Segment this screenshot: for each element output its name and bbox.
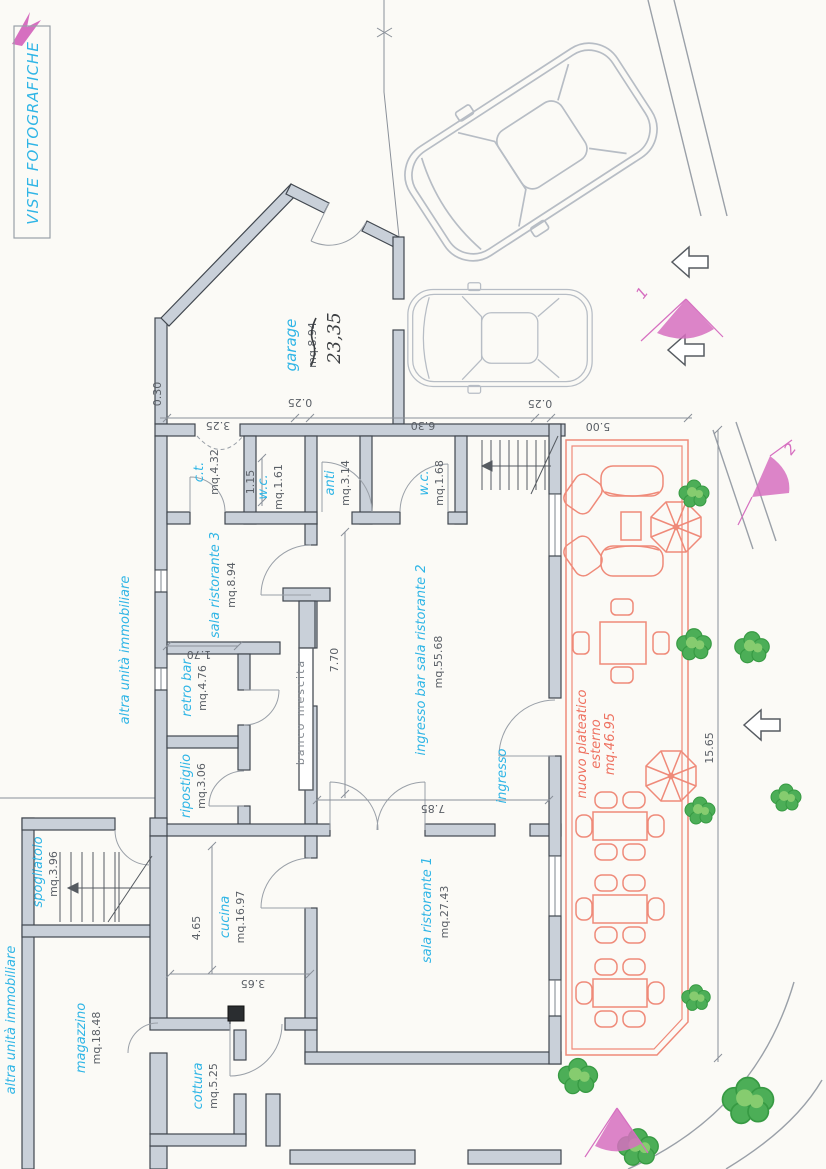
photo-views-title: VISTE FOTOGRAFICHE — [24, 41, 42, 225]
room-anti-area: mq.3.14 — [339, 460, 352, 506]
photo-views-title-box: VISTE FOTOGRAFICHE — [14, 26, 50, 238]
photo-view-marker-1: 1 — [632, 284, 723, 341]
dim-500: 5.00 — [586, 420, 611, 433]
photo-view-marker-2: 2 — [738, 440, 800, 525]
lounge-set — [560, 466, 663, 579]
room-ct: c.t. — [192, 462, 207, 483]
direction-arrow — [668, 335, 704, 365]
room-hall: ingresso bar sala ristorante 2 — [414, 564, 429, 755]
room-hall-area: mq.55.68 — [432, 636, 445, 689]
dim-030: 0.30 — [151, 382, 164, 407]
window — [549, 494, 561, 556]
window — [155, 570, 167, 592]
room-spogliatoio: spogliatoio — [31, 836, 46, 907]
room-ripostiglio-area: mq.3.06 — [195, 763, 208, 809]
window — [155, 668, 167, 690]
marker-number: 1 — [632, 284, 652, 303]
dining-table-set — [576, 959, 664, 1027]
room-magazzino-area: mq.18.48 — [90, 1012, 103, 1065]
room-ripostiglio: ripostiglio — [179, 754, 194, 818]
plateatico-line2: esterno — [589, 719, 604, 768]
room-sala3: sala ristorante 3 — [208, 532, 223, 638]
staircase-spogliatoio — [60, 852, 152, 922]
dim-1565: 15.65 — [703, 732, 716, 764]
room-anti: anti — [323, 470, 338, 495]
label-plateatico: nuovo plateatico esterno mq.46.95 — [575, 690, 618, 799]
room-wc1-area: mq.1.61 — [272, 464, 285, 510]
label-altra-unita-lower: altra unità immobiliare — [4, 946, 19, 1095]
label-ingresso: ingresso — [495, 748, 510, 803]
room-spogliatoio-area: mq.3.96 — [47, 851, 60, 897]
car-parked — [408, 283, 592, 394]
room-cottura: cottura — [191, 1063, 206, 1110]
dim-465: 4.65 — [190, 916, 203, 941]
room-magazzino: magazzino — [74, 1003, 89, 1073]
floor-plan-page: 1 2 VISTE FOTOGRAFICHE garage mq.8.94 23… — [0, 0, 826, 1169]
room-wc1: w.c. — [256, 474, 271, 499]
room-cucina-area: mq.16.97 — [234, 891, 247, 944]
dim-325: 3.25 — [206, 419, 231, 432]
room-cottura-area: mq.5.25 — [207, 1063, 220, 1109]
car-top-right — [387, 23, 675, 282]
bushes — [559, 480, 802, 1165]
room-sala1-area: mq.27.43 — [438, 886, 451, 939]
marker-number: 2 — [780, 440, 800, 459]
direction-arrow — [672, 247, 708, 277]
dim-770: 7.70 — [328, 648, 341, 673]
dim-785: 7.85 — [421, 802, 446, 815]
dining-table-set — [576, 875, 664, 943]
plateatico-line1: nuovo plateatico — [575, 690, 590, 799]
room-retro-area: mq.4.76 — [196, 665, 209, 711]
umbrella — [651, 502, 701, 552]
room-wc2-area: mq.1.68 — [433, 460, 446, 506]
dim-025a: 0.25 — [288, 396, 313, 409]
square-table-set — [573, 599, 669, 683]
corner-arrow-icon — [12, 12, 41, 46]
staircase-top — [482, 436, 558, 494]
plateatico-area: mq.46.95 — [603, 713, 618, 775]
dim-170: 1.70 — [187, 648, 212, 661]
dim-630: 6.30 — [411, 419, 436, 432]
room-sala3-area: mq.8.94 — [225, 562, 238, 608]
dim-365: 3.65 — [241, 977, 266, 990]
room-ct-area: mq.4.32 — [208, 449, 221, 495]
dim-115: 1.15 — [244, 470, 257, 495]
window — [549, 856, 561, 916]
direction-arrow — [744, 710, 780, 740]
room-wc2: w.c. — [417, 470, 432, 495]
floor-plan-drawing: 1 2 VISTE FOTOGRAFICHE garage mq.8.94 23… — [0, 0, 826, 1169]
room-garage: garage — [282, 319, 300, 372]
dining-table-set — [576, 792, 664, 860]
dim-025b: 0.25 — [528, 397, 553, 410]
room-sala1: sala ristorante 1 — [420, 857, 435, 963]
room-garage-area-hand: 23,35 — [324, 312, 345, 365]
label-altra-unita-upper: altra unità immobiliare — [118, 576, 133, 725]
label-banco-mescita: banco mescita — [294, 659, 307, 765]
room-retro: retro bar — [180, 658, 195, 717]
stove-symbol — [228, 1006, 244, 1021]
room-cucina: cucina — [218, 896, 233, 938]
window — [549, 980, 561, 1016]
